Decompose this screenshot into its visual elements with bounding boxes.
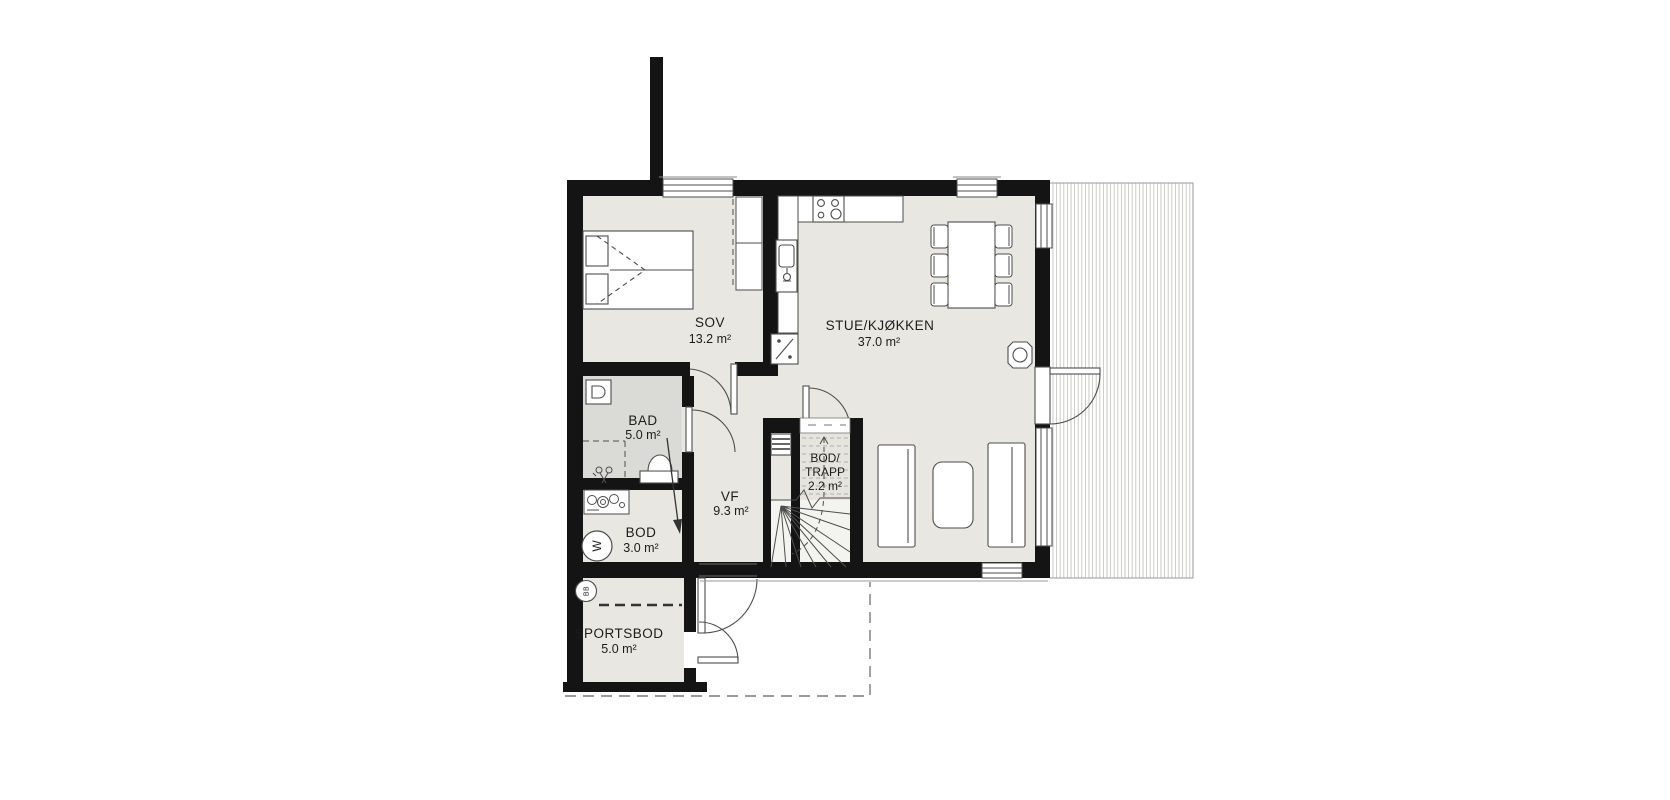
chair bbox=[931, 283, 948, 306]
room-area-sportsbod: 5.0 m² bbox=[601, 642, 636, 656]
room-area-stue: 37.0 m² bbox=[858, 335, 900, 349]
wood-stove-icon bbox=[1008, 342, 1032, 368]
room-label-bodtrapp2: TRAPP bbox=[805, 465, 845, 479]
window-stue-right-bottom bbox=[1036, 428, 1052, 546]
washing-machine-icon: W bbox=[582, 531, 612, 561]
window-sov bbox=[659, 177, 737, 197]
room-label-bodtrapp: BOD/ bbox=[810, 451, 840, 465]
dining-table bbox=[948, 222, 995, 308]
floor-drain-letters: BB bbox=[584, 586, 591, 596]
laundry-sink-icon bbox=[584, 490, 629, 514]
chair bbox=[931, 225, 948, 248]
floor-plan-drawing: W BB SOV 13.2 m² STUE/KJØKKEN 37.0 m² BA… bbox=[0, 0, 1670, 800]
room-area-bodtrapp: 2.2 m² bbox=[808, 479, 842, 493]
coffee-table bbox=[933, 462, 973, 528]
sofa bbox=[988, 443, 1025, 547]
chair bbox=[995, 225, 1012, 248]
bed bbox=[583, 231, 693, 309]
room-label-bad: BAD bbox=[628, 413, 657, 428]
room-label-bod: BOD bbox=[626, 525, 657, 540]
wardrobe bbox=[733, 197, 762, 290]
floor-plan-page: W BB SOV 13.2 m² STUE/KJØKKEN 37.0 m² BA… bbox=[0, 0, 1670, 800]
chair bbox=[995, 254, 1012, 277]
window-stue-bottom bbox=[982, 563, 1022, 578]
floor-drain-icon: BB bbox=[576, 581, 597, 602]
room-label-sov: SOV bbox=[695, 315, 725, 330]
water-heater-icon bbox=[586, 380, 611, 404]
washing-machine-letter: W bbox=[590, 540, 604, 552]
dishwasher-icon bbox=[771, 334, 798, 364]
kitchen-sink-icon bbox=[776, 240, 797, 292]
room-area-bod: 3.0 m² bbox=[623, 541, 658, 555]
room-area-vf: 9.3 m² bbox=[713, 504, 748, 518]
chair bbox=[931, 254, 948, 277]
chair bbox=[995, 283, 1012, 306]
window-kitchen bbox=[953, 177, 1001, 197]
room-label-stue: STUE/KJØKKEN bbox=[826, 318, 935, 333]
sofa bbox=[878, 445, 915, 547]
party-wall bbox=[650, 57, 663, 183]
room-label-sportsbod: SPORTSBOD bbox=[574, 626, 663, 641]
cooktop-icon bbox=[813, 196, 844, 222]
closet-shelves bbox=[771, 434, 791, 455]
room-area-bad: 5.0 m² bbox=[625, 428, 660, 442]
window-stue-right-top bbox=[1036, 204, 1052, 248]
room-area-sov: 13.2 m² bbox=[689, 332, 731, 346]
room-label-vf: VF bbox=[721, 489, 739, 504]
terrace-deck bbox=[1050, 183, 1193, 578]
